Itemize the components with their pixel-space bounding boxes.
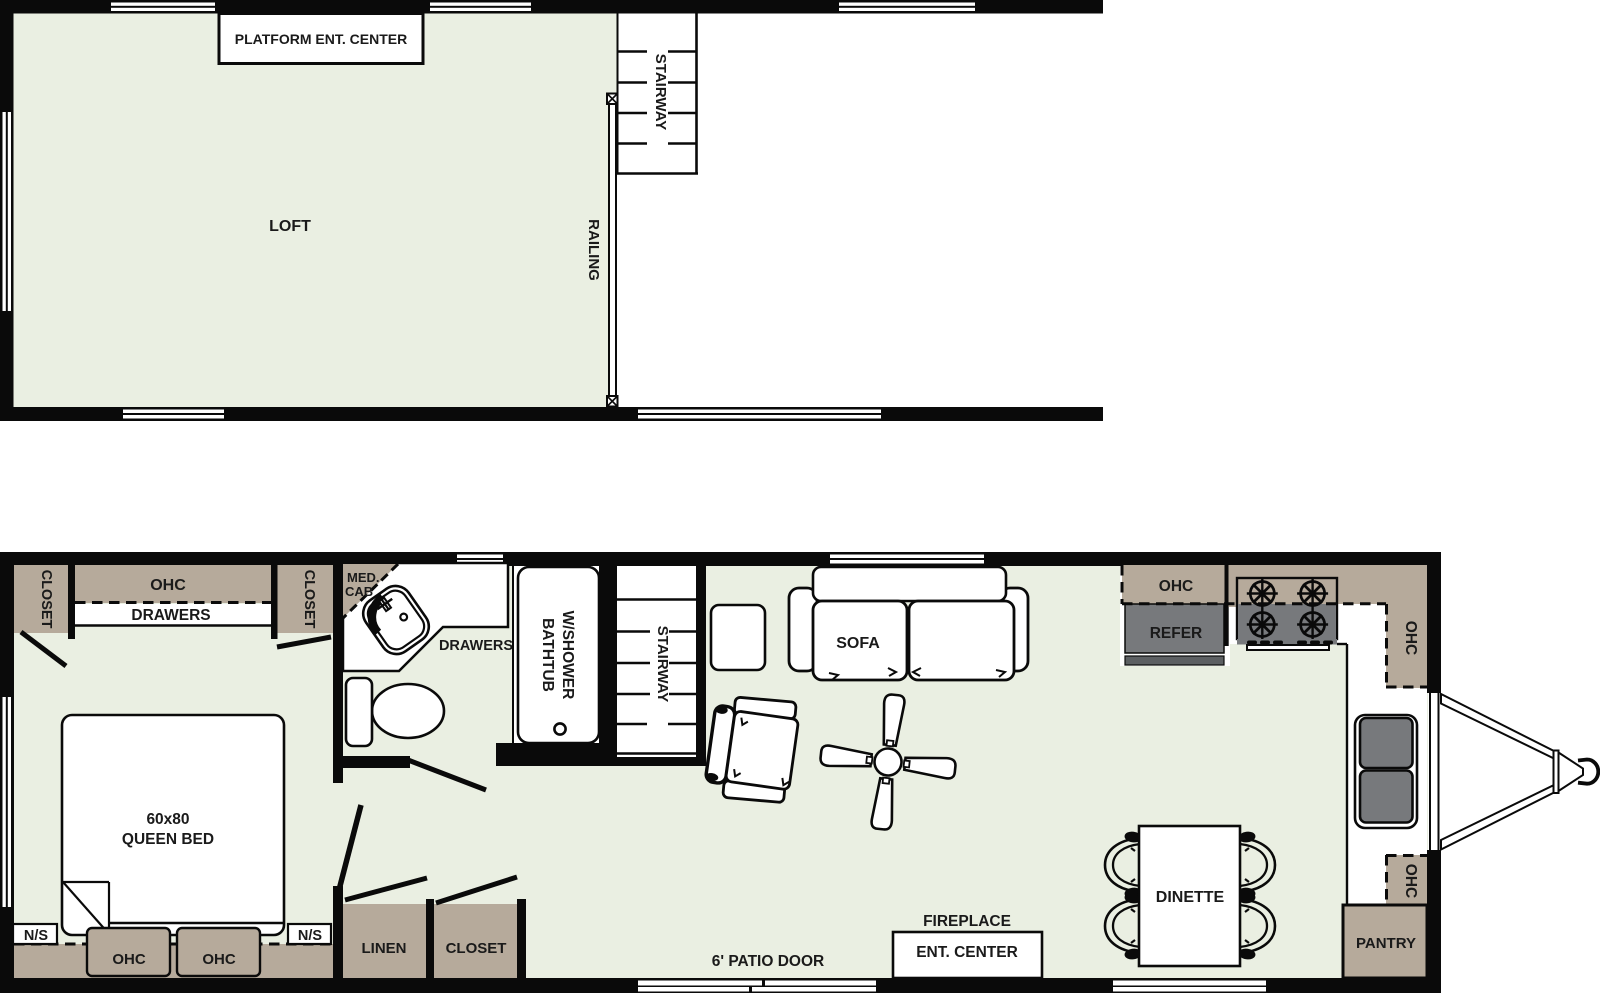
svg-text:LOFT: LOFT [269,218,311,235]
svg-text:N/S: N/S [24,928,49,944]
svg-text:6' PATIO DOOR: 6' PATIO DOOR [712,953,824,970]
svg-text:DINETTE: DINETTE [1156,889,1225,906]
svg-text:SOFA: SOFA [836,635,880,652]
svg-text:REFER: REFER [1150,625,1203,642]
svg-text:BATHTUB: BATHTUB [539,618,556,692]
svg-text:RAILING: RAILING [585,219,602,281]
svg-text:DRAWERS: DRAWERS [131,607,210,624]
svg-text:OHC: OHC [202,951,236,968]
svg-text:60x80: 60x80 [146,811,189,828]
svg-text:OHC: OHC [1159,578,1193,595]
svg-text:OHC: OHC [1402,621,1419,655]
svg-text:OHC: OHC [1402,864,1419,898]
svg-text:N/S: N/S [298,928,323,944]
svg-text:FIREPLACE: FIREPLACE [923,913,1011,930]
svg-text:OHC: OHC [150,577,186,594]
svg-text:PLATFORM ENT. CENTER: PLATFORM ENT. CENTER [235,31,407,47]
svg-text:QUEEN BED: QUEEN BED [122,831,214,848]
svg-text:CLOSET: CLOSET [446,940,507,957]
svg-text:MED.: MED. [347,570,380,585]
svg-text:STAIRWAY: STAIRWAY [654,626,671,702]
svg-text:CAB: CAB [345,584,373,599]
svg-text:PANTRY: PANTRY [1356,935,1416,952]
svg-text:OHC: OHC [112,951,146,968]
svg-text:STAIRWAY: STAIRWAY [652,54,669,130]
svg-text:W/SHOWER: W/SHOWER [559,611,576,700]
svg-text:DRAWERS: DRAWERS [439,638,513,654]
svg-text:CLOSET: CLOSET [38,570,54,629]
svg-text:LINEN: LINEN [362,940,407,957]
svg-text:CLOSET: CLOSET [301,570,317,629]
svg-text:ENT. CENTER: ENT. CENTER [916,944,1018,961]
